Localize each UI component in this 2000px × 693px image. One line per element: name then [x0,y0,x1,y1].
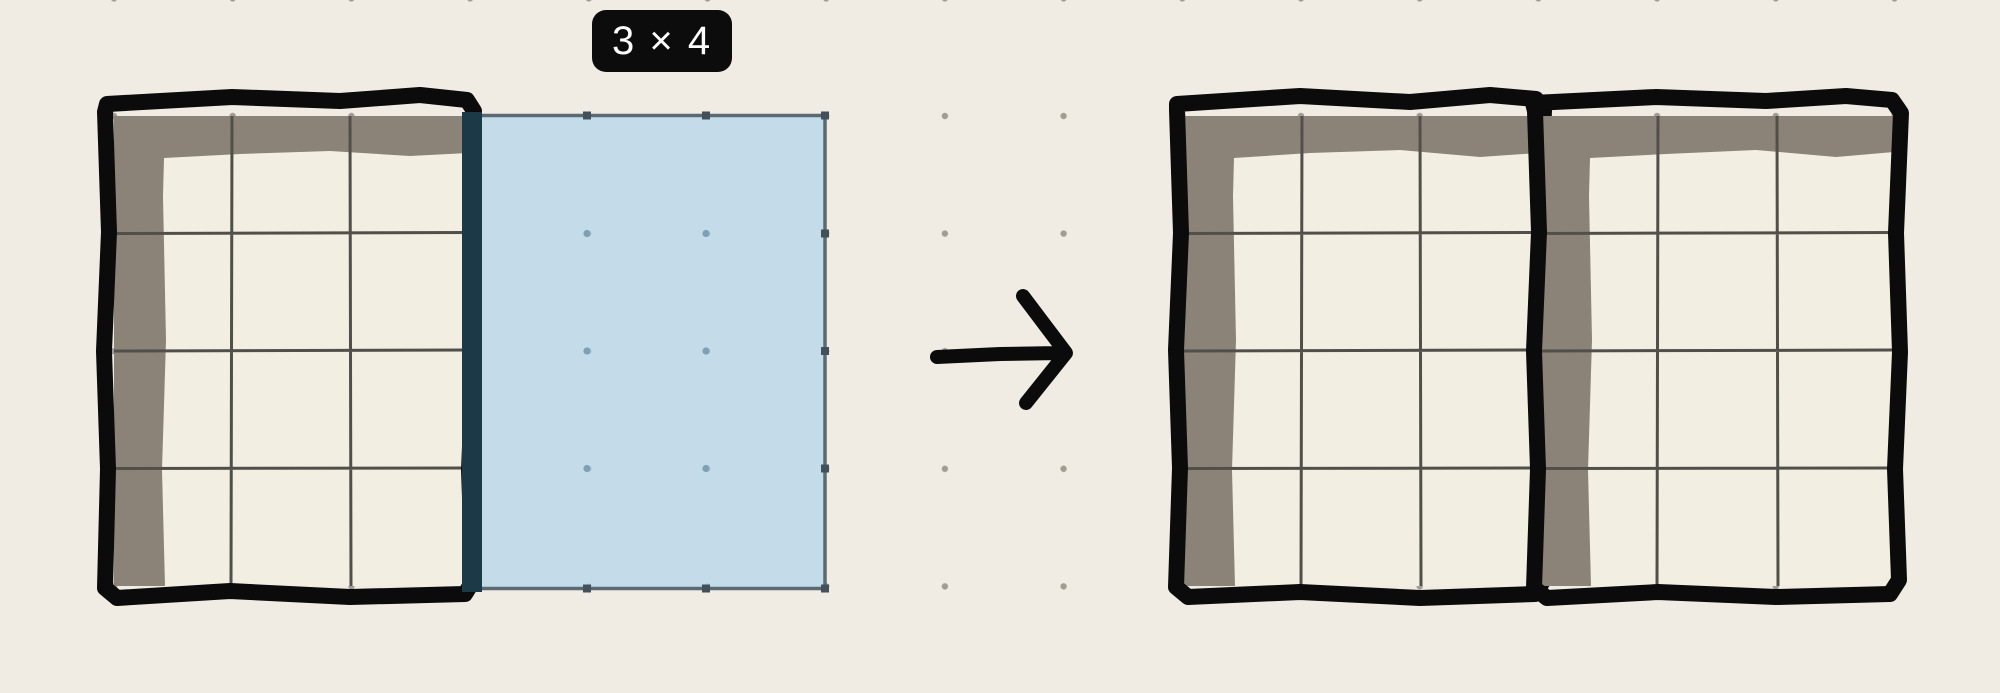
table-fill [162,151,468,586]
source-table[interactable] [104,95,474,598]
size-preview-rect[interactable] [462,112,829,593]
size-label: 3 × 4 [592,10,732,72]
table-fill [1588,150,1894,586]
table-fill [1232,150,1538,586]
result-table-1[interactable] [1176,95,1545,598]
canvas-scene [0,0,2000,693]
border-overlap-strip [462,112,482,592]
whiteboard-canvas[interactable]: 3 × 4 [0,0,2000,693]
preview-fill-rect [468,116,825,589]
result-table-2[interactable] [1533,96,1901,598]
